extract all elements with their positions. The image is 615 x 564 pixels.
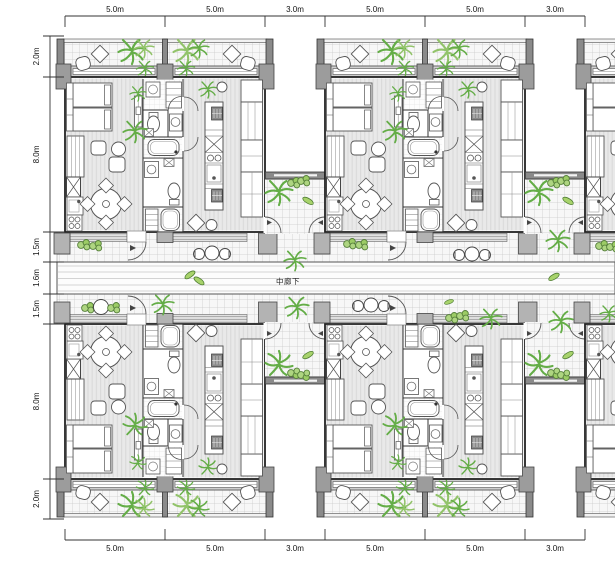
dim-bottom-0: 5.0m [106,544,124,553]
apartment-module-bottom-1 [54,296,327,517]
dim-left-5: 8.0m [32,392,41,410]
dimension-line-top [65,16,585,27]
dim-top-2: 3.0m [286,5,304,14]
dim-bottom-1: 5.0m [206,544,224,553]
dimension-line-bottom [65,529,585,540]
dimension-labels-left: 2.0m 8.0m 1.5m 1.6m 1.5m 8.0m 2.0m [32,47,41,508]
dim-top-3: 5.0m [366,5,384,14]
dim-left-4: 1.5m [32,300,41,318]
apartment-module-bottom-2 [314,296,587,517]
corridor-label: 中廊下 [276,276,300,286]
dim-top-1: 5.0m [206,5,224,14]
dim-left-6: 2.0m [32,490,41,508]
dim-left-3: 1.6m [32,269,41,287]
floor-plan-svg: 中廊下 5.0m 5.0m 3.0m 5.0m 5.0m 3.0m 5.0m 5… [0,0,615,564]
dim-bottom-5: 3.0m [546,544,564,553]
floor-plan-canvas: 中廊下 5.0m 5.0m 3.0m 5.0m 5.0m 3.0m 5.0m 5… [0,0,615,564]
apartment-module-top-1 [54,39,327,260]
dim-left-2: 1.5m [32,238,41,256]
dim-top-0: 5.0m [106,5,124,14]
dim-top-5: 3.0m [546,5,564,14]
central-corridor [57,262,615,294]
dim-bottom-2: 3.0m [286,544,304,553]
dim-bottom-3: 5.0m [366,544,384,553]
dim-left-1: 8.0m [32,145,41,163]
dimension-labels-top: 5.0m 5.0m 3.0m 5.0m 5.0m 3.0m [106,5,564,14]
dim-left-0: 2.0m [32,47,41,65]
dim-bottom-4: 5.0m [466,544,484,553]
apartment-module-top-2 [314,39,587,260]
dimension-labels-bottom: 5.0m 5.0m 3.0m 5.0m 5.0m 3.0m [106,544,564,553]
dim-top-4: 5.0m [466,5,484,14]
